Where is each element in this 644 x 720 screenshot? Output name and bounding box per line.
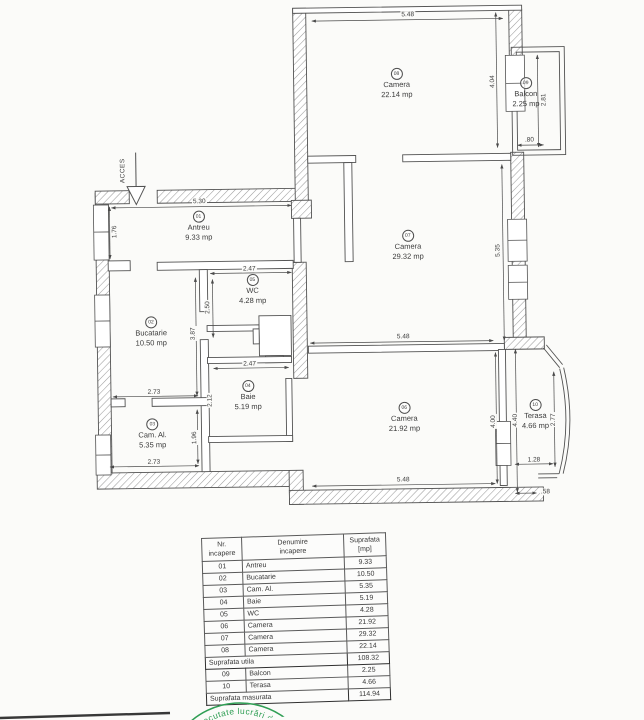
dimension-lines xyxy=(104,12,556,499)
dim-label: 2.47 xyxy=(242,360,257,367)
dim-label: 3.87 xyxy=(190,326,197,341)
room-area: 10.50 mp xyxy=(136,338,167,348)
room-name: Balcon xyxy=(514,89,537,99)
room-number-badge: 04 xyxy=(242,380,254,392)
room-area: 5.19 mp xyxy=(235,401,262,411)
total-value: 114.94 xyxy=(348,688,390,701)
room-name: Terasa xyxy=(524,411,547,421)
room-number-badge: 10 xyxy=(529,399,541,411)
room-number-badge: 01 xyxy=(192,211,204,223)
room-area: 29.32 mp xyxy=(392,251,423,261)
room-number-badge: 09 xyxy=(520,77,532,89)
dim-label: 1.28 xyxy=(527,456,542,463)
room-label-antreu: 01 Antreu 9.33 mp xyxy=(185,211,213,242)
room-area: 4.28 mp xyxy=(239,295,266,305)
floor-plan: ACCES 08 Camera 22.14 mp 09 Balcon 2.25 … xyxy=(0,0,644,539)
areas-table-wrap: Nr. incapere Denumire incapere Suprafata… xyxy=(201,532,391,706)
dim-label: 4.40 xyxy=(512,413,519,428)
room-number-badge: 05 xyxy=(246,274,258,286)
interior-walls xyxy=(105,5,529,491)
room-label-camera-07: 07 Camera 29.32 mp xyxy=(392,230,424,261)
room-area: 21.92 mp xyxy=(389,423,420,433)
room-label-balcon: 09 Balcon 2.25 mp xyxy=(512,77,540,108)
dim-label: 5.35 xyxy=(494,243,501,258)
room-area: 2.25 mp xyxy=(512,98,539,108)
areas-table: Nr. incapere Denumire incapere Suprafata… xyxy=(201,532,391,706)
room-number-badge: 07 xyxy=(402,230,414,242)
dim-label: 4.00 xyxy=(490,414,497,429)
dim-label: .80 xyxy=(524,136,535,143)
room-label-terasa: 10 Terasa 4.66 mp xyxy=(522,399,550,430)
scanned-floor-plan-page: ACCES 08 Camera 22.14 mp 09 Balcon 2.25 … xyxy=(0,0,644,720)
dim-label: 2.12 xyxy=(206,393,213,408)
windows xyxy=(90,55,530,475)
dim-label: 2.81 xyxy=(540,92,547,107)
col-header-area: Suprafata [mp] xyxy=(343,533,386,557)
room-area: 9.33 mp xyxy=(185,232,212,242)
room-area: 22.14 mp xyxy=(381,89,412,99)
room-label-cam-al: 03 Cam. Al. 5.35 mp xyxy=(138,418,167,449)
room-label-bucatarie: 02 Bucatarie 10.50 mp xyxy=(135,316,167,347)
room-area: 5.35 mp xyxy=(139,440,166,450)
room-number-badge: 03 xyxy=(146,418,158,430)
room-label-baie: 04 Baie 5.19 mp xyxy=(234,380,262,411)
dim-label: 2.50 xyxy=(204,300,211,315)
dim-label: 2.77 xyxy=(550,412,557,427)
room-name: Antreu xyxy=(188,223,210,233)
dim-label: 1.96 xyxy=(191,430,198,445)
col-header-nr: Nr. incapere xyxy=(202,537,243,561)
dim-label: 4.04 xyxy=(489,74,496,89)
room-name: Camera xyxy=(391,414,418,424)
room-area: 4.66 mp xyxy=(522,420,549,430)
dim-label: 2.73 xyxy=(147,389,162,396)
room-name: Bucatarie xyxy=(135,328,167,338)
room-name: Camera xyxy=(383,80,410,90)
dim-label: 2.73 xyxy=(147,459,162,466)
dim-label: 5.48 xyxy=(400,11,415,18)
room-label-camera-08: 08 Camera 22.14 mp xyxy=(381,68,413,99)
scan-artifact-line xyxy=(0,706,175,720)
room-name: Baie xyxy=(240,392,255,402)
dim-label: .58 xyxy=(540,488,551,495)
room-label-wc: 05 WC 4.28 mp xyxy=(239,274,267,305)
dim-label: 5.30 xyxy=(192,198,207,205)
room-number-badge: 02 xyxy=(145,316,157,328)
dim-label: 5.48 xyxy=(396,333,411,340)
col-header-name: Denumire incapere xyxy=(241,534,344,560)
dim-label: 5.48 xyxy=(396,476,411,483)
dim-label: 2.47 xyxy=(242,265,257,272)
room-label-camera-06: 06 Camera 21.92 mp xyxy=(388,402,420,433)
room-name: WC xyxy=(246,286,259,296)
room-number-badge: 06 xyxy=(398,402,410,414)
room-number-badge: 08 xyxy=(390,68,402,80)
room-name: Cam. Al. xyxy=(138,430,166,440)
acces-label: ACCES xyxy=(119,158,126,183)
dim-label: 1.76 xyxy=(111,224,118,239)
walls-drawing xyxy=(0,0,644,539)
room-name: Camera xyxy=(395,242,422,252)
